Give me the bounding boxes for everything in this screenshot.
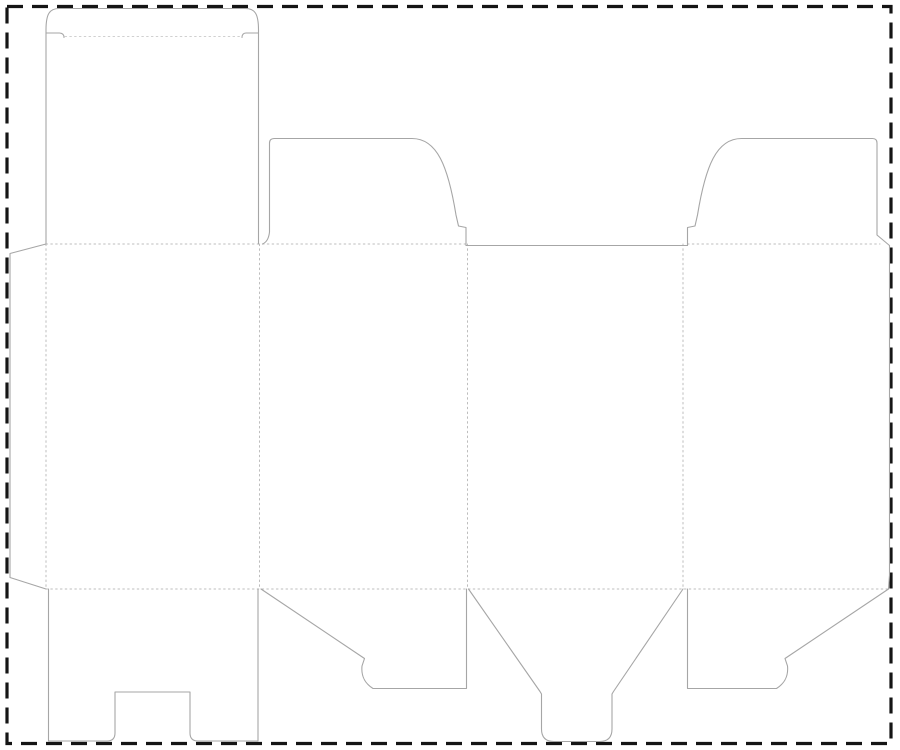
tuck-slit-lock-left-cut <box>46 33 64 38</box>
dieline-sheet <box>0 0 900 750</box>
bottom-flap-notched-cut <box>49 589 259 741</box>
sheet-boundary-dashed-border <box>7 7 891 744</box>
dust-flap-middle-cut <box>263 139 467 246</box>
glue-flap-cut <box>10 244 46 589</box>
tongue-flap-cut <box>469 589 684 742</box>
snap-lock-flap-left-cut <box>261 589 467 689</box>
dust-flap-right-cut <box>688 139 890 246</box>
sheet-right-edge-cut <box>889 246 890 590</box>
tuck-lid-outline-cut <box>46 9 259 245</box>
snap-lock-flap-right-cut <box>688 589 889 689</box>
dieline-drawing <box>0 0 900 750</box>
tuck-slit-lock-right-cut <box>242 33 259 38</box>
